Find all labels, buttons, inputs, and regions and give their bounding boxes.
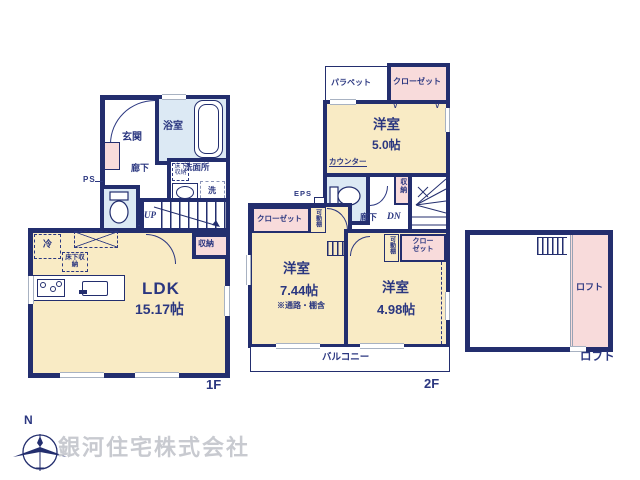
room-b-note: ※通路・棚含 xyxy=(277,302,325,311)
washing-machine-label: 洗 xyxy=(208,187,216,196)
stove-burner-1 xyxy=(40,282,46,288)
loft-label-outside: ロフト xyxy=(580,351,615,364)
stove-burner-3 xyxy=(56,281,62,287)
room-a-window-right xyxy=(445,108,450,132)
room-a-size: 5.0帖 xyxy=(372,139,401,152)
room-entrance-label: 玄関 xyxy=(122,132,142,143)
shelf-a-label: 可動棚 xyxy=(314,209,321,227)
sink-faucet xyxy=(79,290,87,294)
counter-label: カウンター xyxy=(329,158,367,167)
room-bathroom-label: 浴室 xyxy=(163,121,183,132)
ldk-name: LDK xyxy=(142,280,180,299)
ldk-window-bottom-1 xyxy=(60,372,104,378)
ps-tick xyxy=(95,181,103,182)
room-c-window-right xyxy=(445,292,450,320)
balcony-label: バルコニー xyxy=(322,353,369,363)
stairs-f2-winder xyxy=(412,177,446,233)
underfloor-storage-washroom-label: 床下収納 xyxy=(173,164,188,177)
room-a-window-top xyxy=(330,99,356,105)
floor-label-1f: 1F xyxy=(206,378,221,392)
stairs-f1-arrow xyxy=(150,203,226,231)
balcony-window-1 xyxy=(276,343,320,349)
room-c-name: 洋室 xyxy=(382,281,409,296)
closet-c-label: クローゼット xyxy=(410,238,436,253)
ldk-window-left xyxy=(28,276,34,304)
closet-a-label: クローゼット xyxy=(393,78,441,87)
stairs-up-label: UP xyxy=(144,211,156,221)
shelf-b-label: 可動棚 xyxy=(388,236,395,254)
balcony-window-2 xyxy=(360,343,404,349)
cupboard-box xyxy=(74,231,118,248)
loft-label-inside: ロフト xyxy=(576,283,603,293)
toilet-f2-door-arc xyxy=(370,186,388,206)
compass-north-label: N xyxy=(24,414,33,427)
company-name: 銀河住宅株式会社 xyxy=(58,436,250,460)
ldk-window-right xyxy=(224,286,230,316)
room-b-window-left xyxy=(246,255,251,285)
floorplan-canvas: 玄関 浴室 廊下 洗面所 床下収納 洗 PS UP 冷 床下収納 xyxy=(0,0,640,480)
storage-f1-label: 収納 xyxy=(198,240,214,249)
ps-label: PS xyxy=(83,176,96,185)
stove-burner-2 xyxy=(50,286,56,292)
fold-mark-2: ∨ xyxy=(434,101,441,111)
room-c-dashed-line xyxy=(441,262,442,344)
ldk-window-bottom-2 xyxy=(135,372,179,378)
fridge-label: 冷 xyxy=(43,240,52,250)
ldk-size: 15.17帖 xyxy=(135,302,184,317)
entrance-cabinet xyxy=(104,142,120,170)
parapet-label: パラペット xyxy=(331,79,371,88)
underfloor-storage-ldk-label: 床下収納 xyxy=(63,254,87,268)
floor-label-2f: 2F xyxy=(424,377,439,391)
toilet-f1-fixture xyxy=(106,191,132,229)
fold-mark-1: ∨ xyxy=(392,101,399,111)
storage-f2-label: 収納 xyxy=(399,178,407,194)
bathtub-inner xyxy=(198,104,219,154)
bathroom-window xyxy=(162,94,186,100)
hallway-f2-label: 廊下 xyxy=(360,213,377,222)
room-b-size: 7.44帖 xyxy=(280,284,318,298)
room-b-name: 洋室 xyxy=(283,262,310,277)
room-a-name: 洋室 xyxy=(373,118,400,133)
stairs-dn-label: DN xyxy=(387,212,401,222)
loft-ladder xyxy=(537,237,567,255)
room-c-size: 4.98帖 xyxy=(377,303,415,317)
room-hallway-f1-label: 廊下 xyxy=(131,164,149,174)
closet-b-label: クローゼット xyxy=(257,215,302,223)
eps-label: EPS xyxy=(294,190,312,198)
